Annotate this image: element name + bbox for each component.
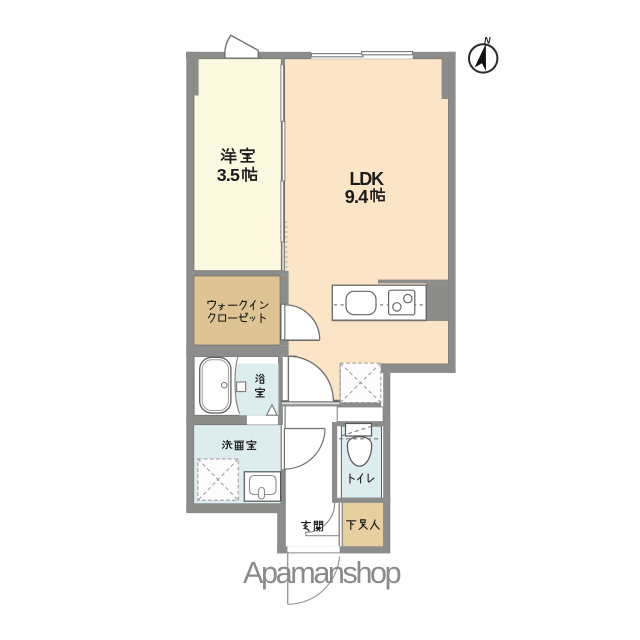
svg-text:LDK: LDK (350, 169, 385, 189)
svg-text:N: N (484, 36, 491, 46)
svg-text:9.4: 9.4 (345, 187, 368, 207)
svg-text:Apamanshop: Apamanshop (243, 556, 401, 590)
svg-text:3.5: 3.5 (217, 165, 240, 185)
